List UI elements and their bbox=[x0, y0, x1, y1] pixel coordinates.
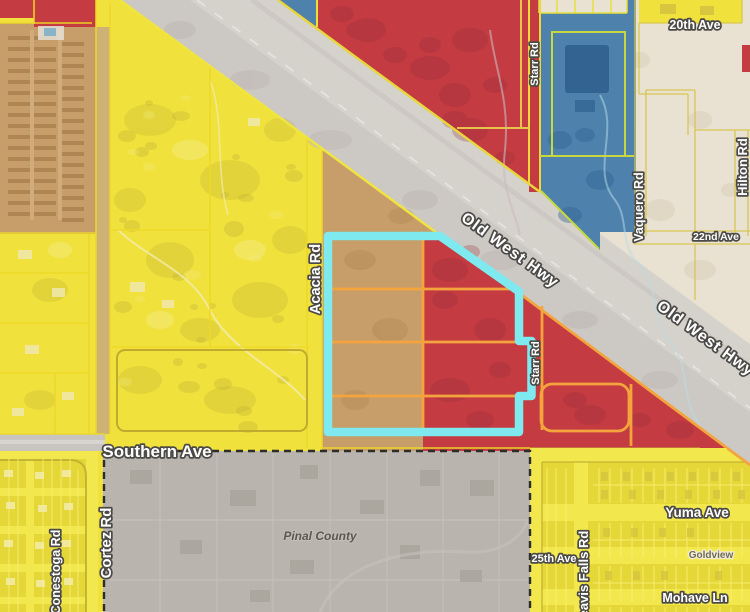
svg-text:Conestoga Rd: Conestoga Rd bbox=[49, 530, 63, 612]
svg-text:Cortez Rd: Cortez Rd bbox=[98, 508, 115, 579]
svg-text:Goldview: Goldview bbox=[689, 550, 734, 561]
svg-text:Pinal County: Pinal County bbox=[283, 529, 358, 543]
svg-text:Leavis Falls Rd: Leavis Falls Rd bbox=[576, 531, 591, 612]
svg-text:Starr Rd: Starr Rd bbox=[530, 341, 542, 384]
svg-text:20th Ave: 20th Ave bbox=[669, 18, 720, 32]
svg-text:Southern Ave: Southern Ave bbox=[102, 442, 211, 461]
svg-text:Mohave Ln: Mohave Ln bbox=[662, 591, 727, 605]
svg-text:Hilton Rd: Hilton Rd bbox=[735, 138, 750, 196]
svg-text:Vaquero Rd: Vaquero Rd bbox=[632, 172, 646, 241]
svg-text:22nd Ave: 22nd Ave bbox=[693, 231, 739, 243]
svg-text:Yuma Ave: Yuma Ave bbox=[665, 505, 729, 520]
svg-text:Starr Rd: Starr Rd bbox=[529, 42, 541, 85]
svg-text:25th Ave: 25th Ave bbox=[531, 553, 576, 565]
svg-text:Acacia Rd: Acacia Rd bbox=[308, 244, 324, 314]
